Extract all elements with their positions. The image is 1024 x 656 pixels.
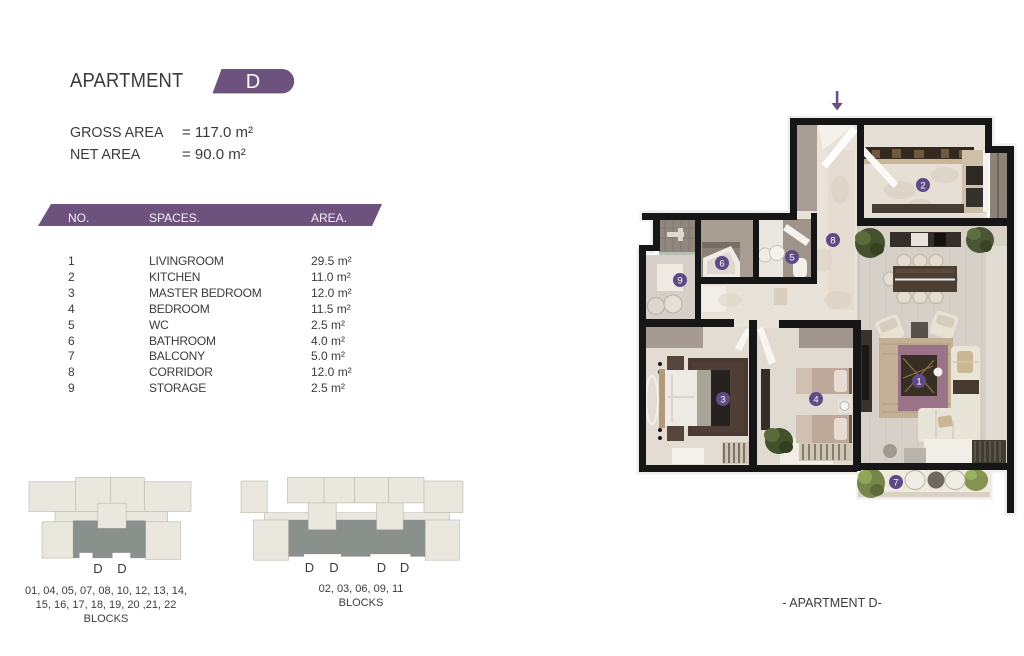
- svg-text:6: 6: [719, 259, 724, 270]
- svg-text:9: 9: [677, 276, 682, 287]
- svg-text:D: D: [305, 560, 314, 575]
- svg-text:1: 1: [916, 377, 921, 388]
- svg-text:7: 7: [893, 478, 898, 489]
- svg-text:D: D: [117, 561, 126, 576]
- svg-text:5: 5: [789, 253, 794, 264]
- svg-text:2: 2: [920, 181, 925, 192]
- svg-text:D: D: [329, 560, 338, 575]
- svg-text:D: D: [400, 560, 409, 575]
- svg-text:4: 4: [813, 395, 818, 406]
- svg-text:D: D: [377, 560, 386, 575]
- svg-text:D: D: [246, 71, 260, 93]
- svg-text:3: 3: [720, 395, 725, 406]
- svg-text:8: 8: [830, 236, 835, 247]
- svg-text:D: D: [93, 561, 102, 576]
